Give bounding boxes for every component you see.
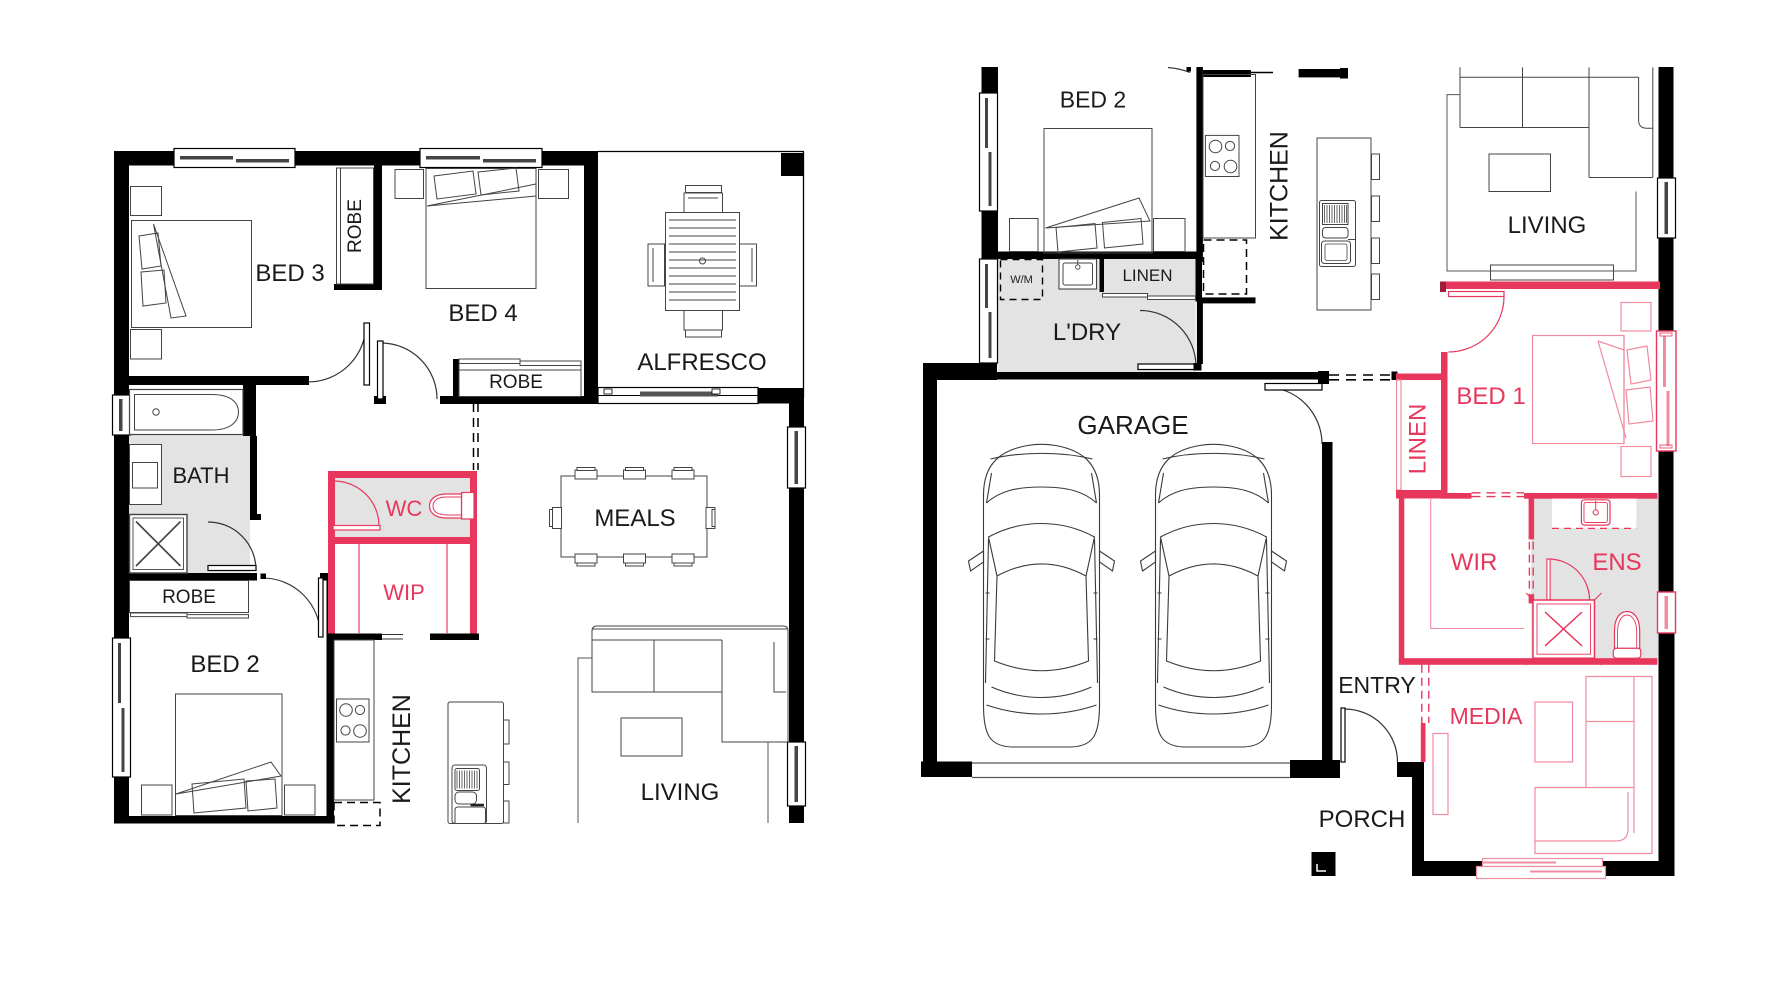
svg-text:PORCH: PORCH [1319, 806, 1406, 833]
svg-text:BED 4: BED 4 [448, 300, 517, 327]
svg-text:BED 1: BED 1 [1456, 383, 1525, 410]
svg-text:LIVING: LIVING [641, 779, 720, 806]
svg-text:LIVING: LIVING [1508, 212, 1587, 239]
svg-text:ALFRESCO: ALFRESCO [637, 349, 766, 376]
svg-text:ENTRY: ENTRY [1338, 672, 1416, 698]
svg-text:BED 2: BED 2 [1060, 87, 1126, 113]
svg-text:BED 2: BED 2 [190, 651, 259, 678]
svg-text:WC: WC [386, 496, 423, 521]
svg-text:ROBE: ROBE [345, 199, 366, 253]
svg-text:LINEN: LINEN [1404, 404, 1431, 475]
svg-text:LINEN: LINEN [1122, 266, 1172, 285]
svg-text:L'DRY: L'DRY [1053, 319, 1121, 346]
svg-text:W/M: W/M [1010, 274, 1033, 286]
svg-text:ENS: ENS [1592, 549, 1641, 576]
svg-text:ROBE: ROBE [162, 587, 216, 608]
svg-text:BATH: BATH [172, 463, 229, 488]
svg-text:BED 3: BED 3 [255, 260, 324, 287]
svg-text:WIP: WIP [383, 580, 425, 605]
svg-text:KITCHEN: KITCHEN [1266, 131, 1294, 241]
svg-text:WIR: WIR [1451, 549, 1498, 576]
svg-text:GARAGE: GARAGE [1077, 410, 1188, 440]
svg-text:KITCHEN: KITCHEN [388, 694, 416, 804]
svg-text:MEDIA: MEDIA [1450, 703, 1524, 729]
svg-text:ROBE: ROBE [489, 372, 543, 393]
svg-text:MEALS: MEALS [594, 505, 675, 532]
